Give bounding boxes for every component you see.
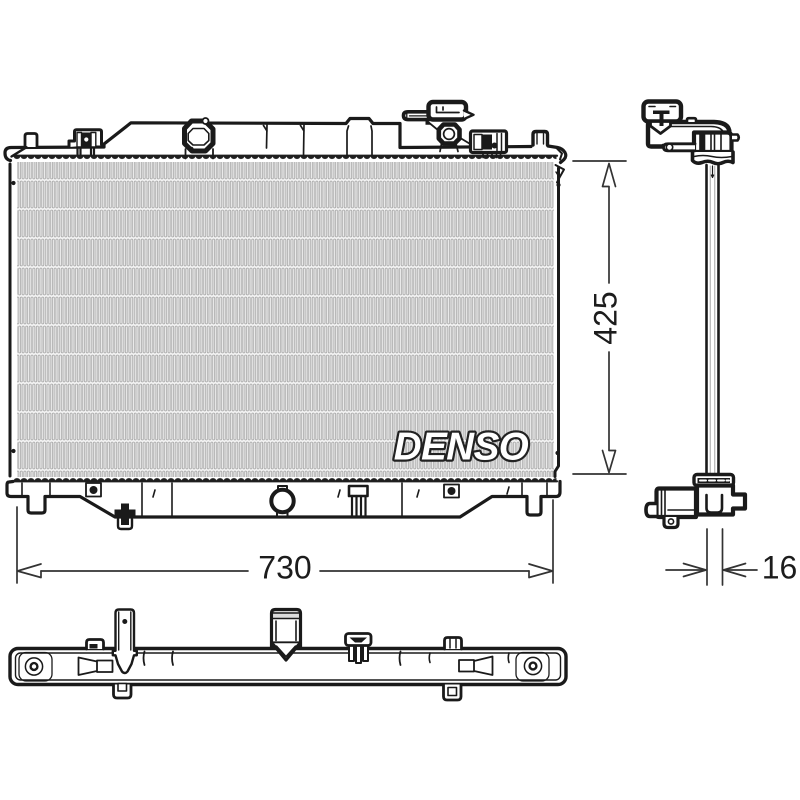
- svg-text:425: 425: [588, 291, 624, 344]
- svg-text:16: 16: [762, 550, 798, 586]
- svg-text:730: 730: [258, 549, 311, 585]
- svg-text:DENSO: DENSO: [394, 426, 529, 469]
